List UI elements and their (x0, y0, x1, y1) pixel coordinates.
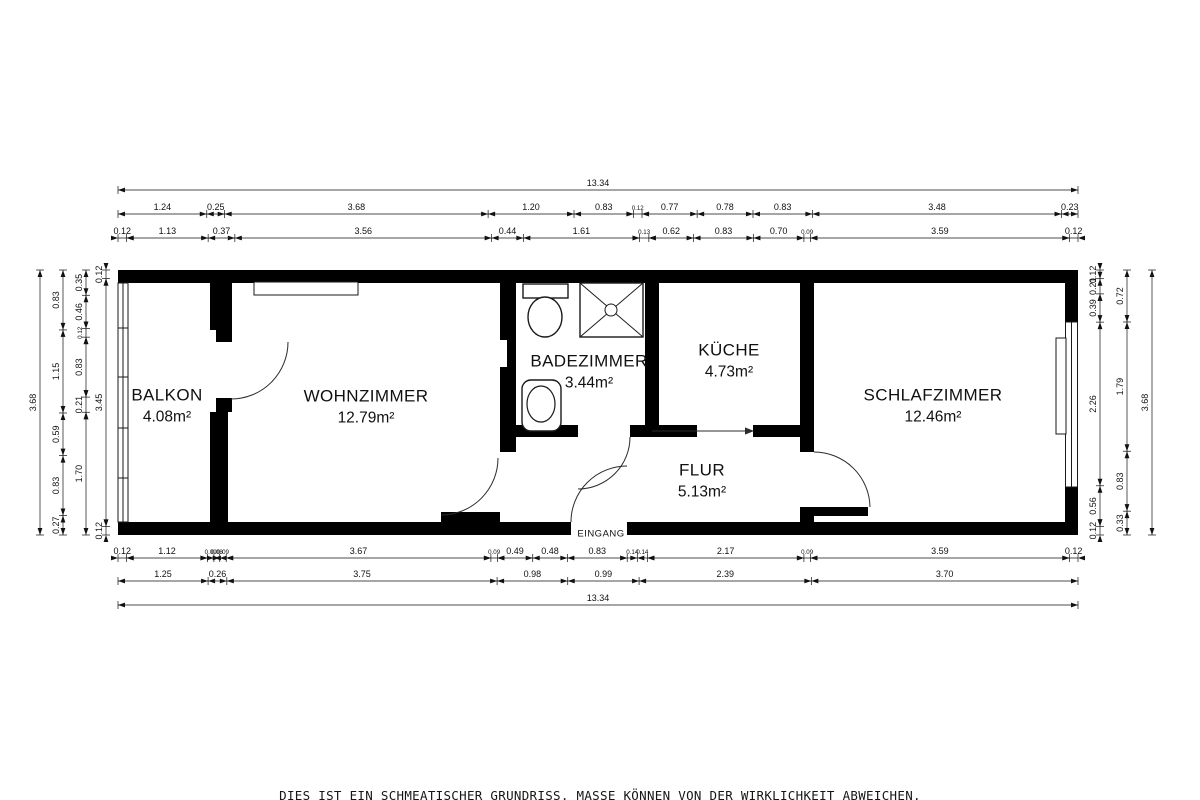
dimension-value: 0.33 (1115, 514, 1125, 532)
wall-balkon-stub (216, 398, 232, 412)
dimension-chain-right: 0.120.210.392.260.560.12 (1088, 263, 1104, 542)
dimension-value: 0.98 (524, 569, 542, 579)
dimension-chain-left: 3.68 (28, 270, 44, 535)
dimension-chain-bottom: 0.121.120.090.080.093.670.090.490.480.83… (111, 546, 1085, 562)
schlafzimmer-window (1056, 322, 1078, 487)
dimension-value: 1.24 (154, 202, 172, 212)
wall-wohnzimmer-door-stub (441, 512, 500, 522)
dimension-value: 0.35 (74, 274, 84, 292)
dimension-value: 0.12 (1065, 226, 1083, 236)
dimension-chain-left: 0.831.150.590.830.27 (51, 270, 67, 535)
dimension-value: 3.68 (28, 394, 38, 412)
dimension-value: 0.49 (506, 546, 524, 556)
wall-flur-schlafzimmer (800, 283, 814, 452)
dimension-value: 1.13 (159, 226, 177, 236)
wall-balkon-lower (210, 412, 228, 522)
dimension-value: 3.59 (931, 226, 949, 236)
dimension-value: 13.34 (587, 178, 610, 188)
wall-niche (500, 340, 507, 367)
dimension-value: 0.70 (770, 226, 788, 236)
dimension-value: 0.83 (595, 202, 613, 212)
dimension-value: 3.59 (931, 546, 949, 556)
dimension-value: 0.37 (213, 226, 231, 236)
dimension-value: 3.68 (348, 202, 366, 212)
wall-bottom-right (627, 522, 1078, 535)
dimension-value: 3.75 (353, 569, 371, 579)
dimension-value: 0.99 (595, 569, 613, 579)
dimension-chain-right: 0.721.790.830.33 (1115, 270, 1131, 535)
dimension-chain-right: 3.68 (1140, 270, 1156, 535)
dimension-value: 2.17 (717, 546, 735, 556)
floorplan-canvas: 13.341.240.253.681.200.830.120.770.780.8… (0, 0, 1200, 800)
dimension-value: 13.34 (587, 593, 610, 603)
wall-bottom-left (118, 522, 571, 535)
wall-top (118, 270, 1078, 283)
dimension-value: 0.83 (715, 226, 733, 236)
arrow-head-icon (745, 427, 754, 434)
bath-fixtures (522, 283, 643, 431)
wall-schlafzimmer-door-joiner (800, 507, 814, 522)
dimension-value: 0.12 (94, 266, 104, 284)
dimension-value: 1.15 (51, 363, 61, 381)
dimension-value: 0.21 (74, 396, 84, 414)
dimension-value: 0.72 (1115, 287, 1125, 305)
dimension-value: 0.21 (1088, 278, 1098, 296)
dimension-value: 2.26 (1088, 395, 1098, 413)
dimension-value: 0.12 (632, 205, 645, 212)
dimension-value: 0.12 (94, 522, 104, 540)
wall-balkon-step (216, 330, 232, 342)
balkon-window (118, 283, 128, 522)
dimension-value: 0.46 (74, 303, 84, 321)
dimension-value: 0.12 (1065, 546, 1083, 556)
dimension-value: 0.27 (51, 516, 61, 534)
dimension-value: 0.12 (114, 226, 132, 236)
dimension-value: 1.79 (1115, 378, 1125, 396)
dimension-value: 0.09 (801, 549, 814, 556)
dimension-value: 0.83 (74, 358, 84, 376)
schlafzimmer-door-arc (814, 452, 870, 507)
dimension-value: 0.59 (51, 426, 61, 444)
sink-icon (522, 380, 561, 431)
dimension-value: 0.44 (499, 226, 517, 236)
dimension-value: 0.83 (589, 546, 607, 556)
dimension-value: 0.62 (662, 226, 680, 236)
dimension-value: 0.78 (716, 202, 734, 212)
dimension-value: 0.09 (488, 549, 501, 556)
wall-balkon-pillar (210, 283, 232, 330)
dimension-chain-bottom: 13.34 (118, 593, 1078, 609)
dimension-value: 0.83 (1115, 472, 1125, 490)
dimension-value: 0.12 (114, 546, 132, 556)
dimension-value: 3.56 (354, 226, 372, 236)
schlafzimmer-window-sill (1056, 338, 1066, 434)
dimension-value: 3.68 (1140, 394, 1150, 412)
dimension-value: 3.67 (350, 546, 368, 556)
dimension-lines: 13.341.240.253.681.200.830.120.770.780.8… (28, 178, 1156, 609)
dimension-chain-left: 0.123.450.12 (94, 263, 110, 542)
wall-bad-kueche (645, 283, 659, 437)
wohnzimmer-window (254, 282, 358, 295)
dimension-value: 0.09 (801, 229, 814, 236)
dimension-value: 0.12 (77, 326, 84, 339)
dimension-value: 0.09 (217, 549, 230, 556)
dimension-value: 0.56 (1088, 497, 1098, 515)
dimension-chain-top: 13.34 (118, 178, 1078, 194)
dimension-value: 2.39 (716, 569, 734, 579)
dimension-chain-top: 1.240.253.681.200.830.120.770.780.833.48… (118, 202, 1079, 218)
dimension-value: 0.25 (207, 202, 225, 212)
balkon-door-arc (231, 342, 288, 399)
dimension-value: 0.14 (636, 549, 649, 556)
badezimmer-door-arc (578, 437, 630, 489)
dimension-value: 1.12 (158, 546, 176, 556)
wohnzimmer-door-arc (441, 458, 498, 515)
dimension-value: 1.61 (573, 226, 591, 236)
dimension-value: 1.25 (154, 569, 172, 579)
dimension-chain-bottom: 1.250.263.750.980.992.393.70 (118, 569, 1078, 585)
toilet-icon (523, 284, 568, 337)
dimension-value: 3.70 (936, 569, 954, 579)
shower-icon (580, 283, 643, 337)
dimension-value: 3.45 (94, 394, 104, 412)
entrance-door-arc (571, 466, 627, 522)
dimension-value: 0.13 (638, 229, 651, 236)
dimension-value: 0.83 (51, 291, 61, 309)
dimension-value: 0.12 (1088, 522, 1098, 540)
dimension-value: 0.83 (774, 202, 792, 212)
dimension-value: 0.48 (541, 546, 559, 556)
floorplan-drawing: 13.341.240.253.681.200.830.120.770.780.8… (0, 0, 1200, 800)
dimension-value: 1.20 (522, 202, 540, 212)
dimension-value: 0.39 (1088, 299, 1098, 317)
dimension-value: 0.77 (661, 202, 679, 212)
dimension-value: 0.83 (51, 477, 61, 495)
dimension-value: 0.26 (209, 569, 227, 579)
dimension-chain-top: 0.121.130.373.560.441.610.130.620.830.70… (111, 226, 1085, 242)
dimension-value: 3.48 (928, 202, 946, 212)
dimension-value: 1.70 (74, 465, 84, 483)
dimension-chain-left: 0.350.460.120.830.211.70 (74, 270, 90, 535)
dimension-value: 0.23 (1061, 202, 1079, 212)
